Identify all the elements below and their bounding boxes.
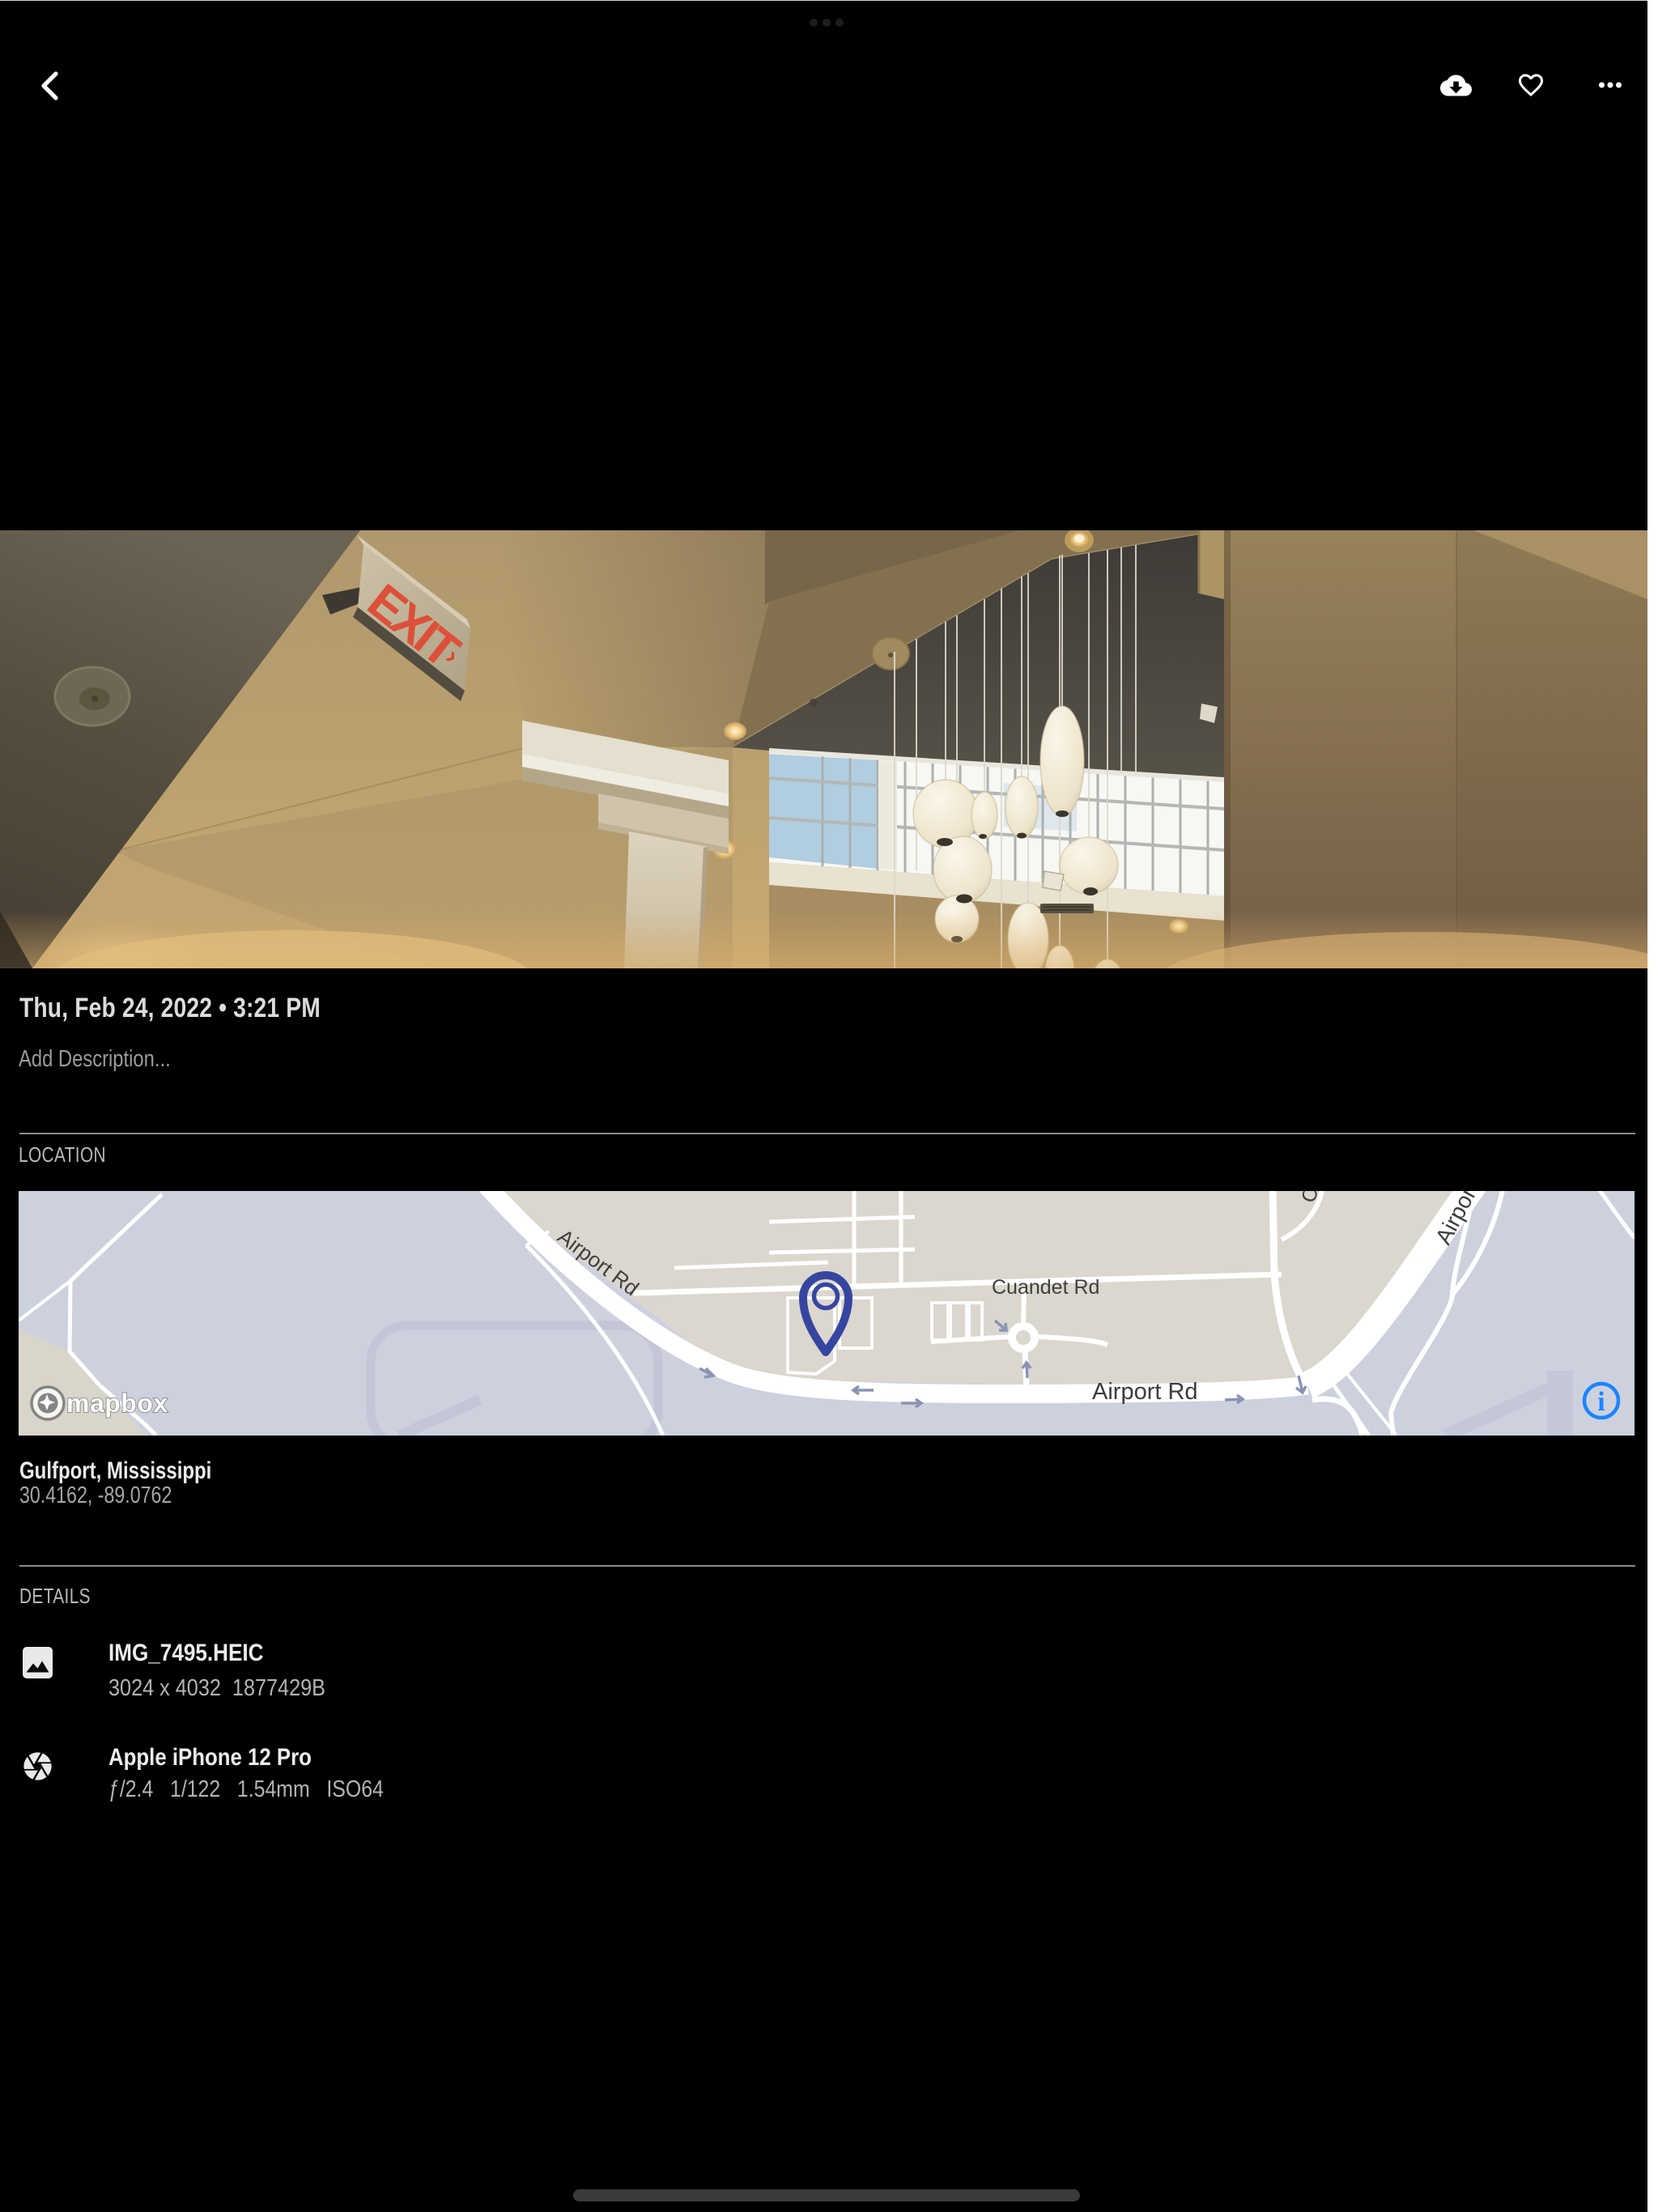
svg-text:Cuandet Rd: Cuandet Rd [992,1276,1099,1299]
svg-text:i: i [1597,1387,1605,1417]
svg-text:Airport Rd: Airport Rd [1092,1379,1198,1405]
svg-text:mapbox: mapbox [66,1389,168,1418]
